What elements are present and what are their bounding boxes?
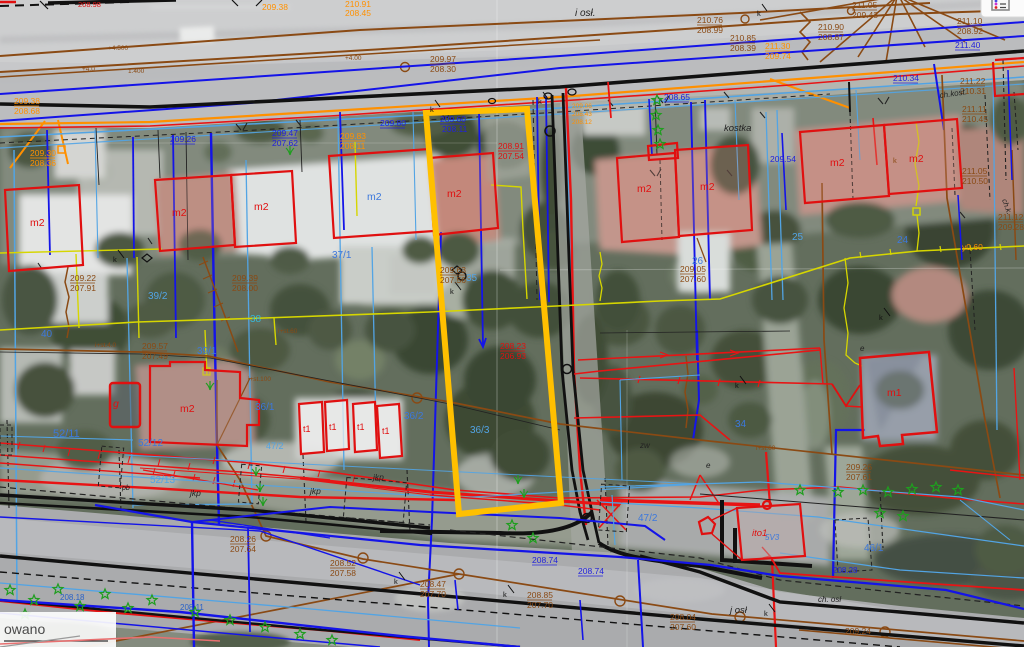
svg-text:47/2: 47/2 <box>266 441 284 451</box>
svg-text:210.76: 210.76 <box>697 15 723 25</box>
svg-text:209.39: 209.39 <box>232 273 258 283</box>
svg-text:209.47: 209.47 <box>272 128 298 138</box>
svg-text:t1: t1 <box>329 422 337 432</box>
svg-text:208.23: 208.23 <box>500 341 526 351</box>
svg-text:208.45: 208.45 <box>345 8 371 18</box>
svg-text:209.97: 209.97 <box>430 54 456 64</box>
svg-text:i+st.60: i+st.60 <box>278 328 298 335</box>
svg-text:207.91: 207.91 <box>70 283 96 293</box>
svg-text:k: k <box>503 590 507 599</box>
svg-text:209.43: 209.43 <box>852 10 878 20</box>
svg-text:206.93: 206.93 <box>500 351 526 361</box>
svg-text:209.06: 209.06 <box>572 103 592 110</box>
svg-text:y0.60: y0.60 <box>962 242 983 252</box>
svg-text:m1: m1 <box>887 387 902 399</box>
svg-text:209.54: 209.54 <box>770 154 796 164</box>
svg-text:+4.00: +4.00 <box>345 55 362 62</box>
svg-text:207.70: 207.70 <box>527 600 553 610</box>
svg-text:k: k <box>735 381 739 390</box>
svg-text:211.30: 211.30 <box>765 41 791 51</box>
svg-text:k: k <box>430 105 434 114</box>
svg-text:jkp: jkp <box>372 472 384 482</box>
svg-text:209.24: 209.24 <box>845 626 871 636</box>
svg-text:g: g <box>113 398 119 410</box>
svg-text:+4.0: +4.0 <box>82 66 95 73</box>
svg-text:208.12: 208.12 <box>572 119 592 126</box>
svg-text:i osł.: i osł. <box>575 8 596 19</box>
svg-text:208.11: 208.11 <box>442 124 468 134</box>
svg-text:zw: zw <box>639 441 651 450</box>
svg-text:52/13: 52/13 <box>150 475 175 486</box>
svg-text:208.98: 208.98 <box>78 0 101 9</box>
svg-text:j osł: j osł <box>728 605 748 616</box>
svg-text:209.26: 209.26 <box>846 462 872 472</box>
svg-text:208.47: 208.47 <box>420 579 446 589</box>
svg-text:208.11: 208.11 <box>180 603 204 612</box>
svg-text:208.26: 208.26 <box>230 534 256 544</box>
svg-text:m2: m2 <box>909 153 924 165</box>
svg-text:210.34: 210.34 <box>893 73 919 83</box>
svg-text:210.45: 210.45 <box>962 114 988 124</box>
svg-text:34: 34 <box>735 419 747 430</box>
svg-text:40: 40 <box>41 329 53 340</box>
svg-text:208.87: 208.87 <box>818 32 844 42</box>
svg-text:207.60: 207.60 <box>670 622 696 632</box>
svg-text:210.50: 210.50 <box>962 176 988 186</box>
svg-text:207.58: 207.58 <box>330 568 356 578</box>
svg-text:207.49: 207.49 <box>142 351 168 361</box>
svg-text:208.39: 208.39 <box>730 43 756 53</box>
svg-text:208.28: 208.28 <box>833 566 858 575</box>
svg-text:m2: m2 <box>637 183 652 195</box>
svg-text:k: k <box>538 97 542 106</box>
svg-text:m2: m2 <box>700 181 715 193</box>
svg-text:52/12: 52/12 <box>138 438 163 449</box>
svg-text:209.30: 209.30 <box>30 148 56 158</box>
svg-text:211.10: 211.10 <box>957 16 983 26</box>
svg-text:208.30: 208.30 <box>430 64 456 74</box>
svg-text:207.56: 207.56 <box>440 275 466 285</box>
svg-text:209.05: 209.05 <box>680 264 706 274</box>
svg-text:208.65: 208.65 <box>664 92 690 102</box>
svg-text:208.18: 208.18 <box>60 593 85 602</box>
svg-text:m2: m2 <box>367 191 382 203</box>
svg-text:209.38: 209.38 <box>14 96 40 106</box>
svg-text:k: k <box>879 313 883 322</box>
svg-text:209.22: 209.22 <box>70 273 96 283</box>
svg-text:m2: m2 <box>30 217 45 229</box>
svg-text:208.85: 208.85 <box>527 590 553 600</box>
svg-text:i+st.60: i+st.60 <box>756 445 776 452</box>
svg-text:207.60: 207.60 <box>680 274 706 284</box>
svg-text:pb: pb <box>121 485 130 492</box>
svg-text:47/2: 47/2 <box>638 513 658 524</box>
svg-text:208.68: 208.68 <box>14 106 40 116</box>
svg-text:211.11: 211.11 <box>962 104 987 114</box>
svg-text:e: e <box>860 344 865 353</box>
svg-text:k: k <box>394 577 398 586</box>
svg-text:m2: m2 <box>830 157 845 169</box>
svg-text:24: 24 <box>897 235 909 246</box>
svg-text:ch. osł: ch. osł <box>818 595 841 604</box>
svg-text:m2: m2 <box>447 188 462 200</box>
svg-text:209.28: 209.28 <box>998 222 1024 232</box>
svg-text:208.00: 208.00 <box>232 283 258 293</box>
svg-text:ito1: ito1 <box>752 528 767 539</box>
svg-text:36/1: 36/1 <box>255 402 275 413</box>
svg-text:209.38: 209.38 <box>262 2 288 12</box>
svg-text:46/1: 46/1 <box>864 543 884 554</box>
svg-text:39/1: 39/1 <box>197 346 217 357</box>
svg-text:i+st.100: i+st.100 <box>248 376 271 383</box>
svg-text:39/2: 39/2 <box>148 291 168 302</box>
svg-text:208.43: 208.43 <box>572 111 592 118</box>
svg-text:208.36: 208.36 <box>30 158 56 168</box>
svg-text:52/11: 52/11 <box>53 428 80 440</box>
svg-text:t1: t1 <box>303 424 311 434</box>
svg-text:36/2: 36/2 <box>404 411 424 422</box>
svg-text:t1: t1 <box>357 422 365 432</box>
svg-text:208.91: 208.91 <box>498 141 524 151</box>
svg-text:k: k <box>764 609 768 618</box>
svg-text:209.63: 209.63 <box>440 265 466 275</box>
svg-text:37/1: 37/1 <box>332 250 352 261</box>
svg-text:k: k <box>113 255 117 264</box>
svg-text:k: k <box>757 9 761 18</box>
svg-text:36/3: 36/3 <box>470 425 490 436</box>
svg-text:211.05: 211.05 <box>962 166 988 176</box>
svg-text:207.54: 207.54 <box>498 151 524 161</box>
svg-text:25: 25 <box>792 232 804 243</box>
svg-text:k: k <box>893 156 897 165</box>
svg-text:35: 35 <box>466 273 478 284</box>
svg-text:207.70: 207.70 <box>420 589 446 599</box>
svg-text:208.04: 208.04 <box>670 612 696 622</box>
svg-text:jkp: jkp <box>189 488 201 498</box>
svg-text:209.57: 209.57 <box>142 341 168 351</box>
svg-text:208.52: 208.52 <box>330 558 356 568</box>
svg-text:208.74: 208.74 <box>532 555 558 565</box>
svg-text:207.64: 207.64 <box>230 544 256 554</box>
svg-text:211.22: 211.22 <box>960 76 986 86</box>
svg-text:207.62: 207.62 <box>272 138 298 148</box>
svg-text:209.83: 209.83 <box>340 131 366 141</box>
svg-text:207.61: 207.61 <box>846 472 872 482</box>
svg-text:211.05: 211.05 <box>852 0 878 10</box>
svg-text:208.74: 208.74 <box>578 566 604 576</box>
svg-text:+4.500: +4.500 <box>108 45 128 52</box>
svg-text:kostka: kostka <box>724 123 751 134</box>
svg-text:k: k <box>450 287 454 296</box>
svg-text:210.85: 210.85 <box>730 33 756 43</box>
svg-text:209.74: 209.74 <box>765 51 791 61</box>
svg-text:owano: owano <box>4 621 45 637</box>
svg-text:jkp: jkp <box>309 486 321 496</box>
svg-text:209.60: 209.60 <box>440 114 466 124</box>
svg-text:38: 38 <box>250 314 262 325</box>
svg-text:210.90: 210.90 <box>818 22 844 32</box>
svg-text:208.11: 208.11 <box>340 141 366 151</box>
svg-text:m2: m2 <box>172 207 187 219</box>
svg-text:208.99: 208.99 <box>697 25 723 35</box>
svg-text:i+st.4.0: i+st.4.0 <box>95 342 117 349</box>
svg-text:m2: m2 <box>254 201 269 213</box>
svg-text:208.92: 208.92 <box>957 26 983 36</box>
svg-text:211.40: 211.40 <box>955 40 981 50</box>
svg-text:1.400: 1.400 <box>128 68 145 75</box>
svg-text:e: e <box>706 461 711 470</box>
svg-text:209.26: 209.26 <box>170 134 196 144</box>
svg-text:t1: t1 <box>382 426 390 436</box>
svg-text:m2: m2 <box>180 403 195 415</box>
svg-text:209.80: 209.80 <box>380 118 406 128</box>
